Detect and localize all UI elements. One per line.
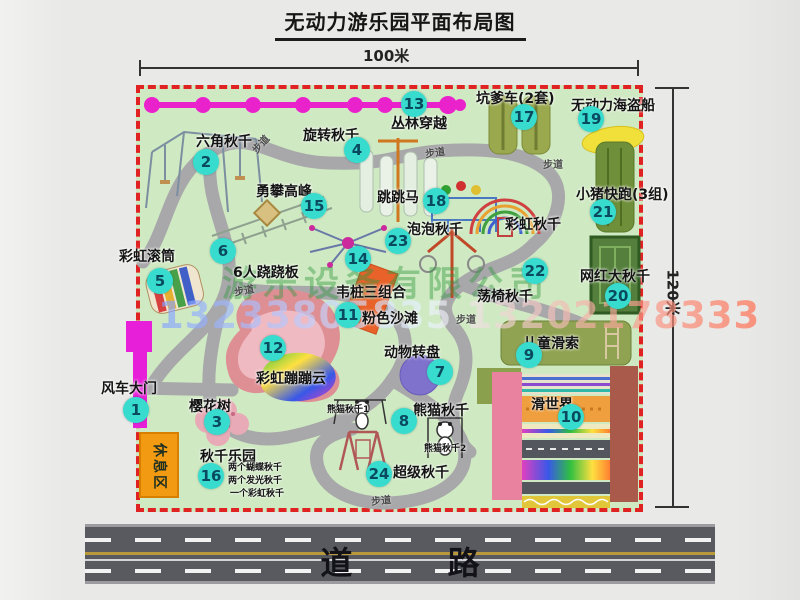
attraction-label: 六角秋千 bbox=[196, 131, 252, 151]
attraction-badge: 9 bbox=[516, 342, 542, 368]
attraction-badge: 16 bbox=[198, 463, 224, 489]
attraction-label: 荡椅秋千 bbox=[477, 286, 533, 306]
plain-label: 两个发光秋千 bbox=[228, 473, 282, 486]
attraction-badge: 6 bbox=[210, 238, 236, 264]
attraction-label: 超级秋千 bbox=[393, 462, 449, 482]
attraction-badge: 10 bbox=[558, 404, 584, 430]
attraction-badge: 4 bbox=[344, 137, 370, 163]
road-label: 道 路 bbox=[85, 538, 715, 584]
attraction-label: 跳跳马 bbox=[377, 187, 419, 207]
attraction-badge: 18 bbox=[423, 188, 449, 214]
attraction-label: 粉色沙滩 bbox=[362, 308, 418, 328]
attraction-badge: 12 bbox=[260, 335, 286, 361]
attraction-label: 动物转盘 bbox=[384, 342, 440, 362]
walkway-label: 步道 bbox=[456, 311, 476, 326]
walkway-label: 步道 bbox=[424, 143, 446, 161]
attraction-badge: 2 bbox=[193, 149, 219, 175]
attraction-badge: 5 bbox=[147, 268, 173, 294]
attraction-badge: 15 bbox=[301, 193, 327, 219]
plain-label: 熊猫秋千2 bbox=[424, 441, 466, 454]
plain-label: 彩虹秋千 bbox=[505, 214, 561, 234]
attraction-badge: 13 bbox=[401, 91, 427, 117]
attraction-badge: 7 bbox=[427, 359, 453, 385]
attraction-badge: 8 bbox=[391, 408, 417, 434]
plain-label: 两个蝴蝶秋千 bbox=[228, 460, 282, 473]
attraction-badge: 3 bbox=[204, 409, 230, 435]
plain-label: 熊猫秋千1 bbox=[327, 402, 369, 415]
walkway-label: 步道 bbox=[370, 491, 391, 508]
attraction-label: 彩虹蹦蹦云 bbox=[256, 368, 326, 388]
attraction-badge: 21 bbox=[590, 199, 616, 225]
attraction-label: 风车大门 bbox=[101, 378, 157, 398]
attraction-label: 泡泡秋千 bbox=[407, 219, 463, 239]
attraction-label: 熊猫秋千 bbox=[413, 400, 469, 420]
attraction-label: 6人跷跷板 bbox=[233, 262, 299, 282]
plain-label: 一个彩虹秋千 bbox=[230, 486, 284, 499]
attraction-badge: 14 bbox=[345, 246, 371, 272]
attraction-badge: 11 bbox=[335, 302, 361, 328]
attraction-badge: 1 bbox=[123, 397, 149, 423]
rest-area: 休息区 bbox=[139, 432, 179, 498]
attraction-label: 坑爹车(2套) bbox=[476, 88, 555, 108]
attraction-badge: 22 bbox=[522, 258, 548, 284]
road: 道 路 bbox=[85, 524, 715, 584]
attraction-badge: 24 bbox=[366, 461, 392, 487]
attraction-label: 韦桩三组合 bbox=[336, 282, 406, 302]
attraction-label: 小猪快跑(3组) bbox=[576, 184, 669, 204]
attraction-label: 彩虹滚筒 bbox=[119, 246, 175, 266]
attraction-badge: 20 bbox=[605, 283, 631, 309]
rest-area-label: 休息区 bbox=[150, 437, 170, 497]
attraction-badge: 23 bbox=[385, 228, 411, 254]
attraction-badge: 17 bbox=[511, 104, 537, 130]
walkway-label: 步道 bbox=[543, 156, 563, 171]
attraction-badge: 19 bbox=[578, 106, 604, 132]
